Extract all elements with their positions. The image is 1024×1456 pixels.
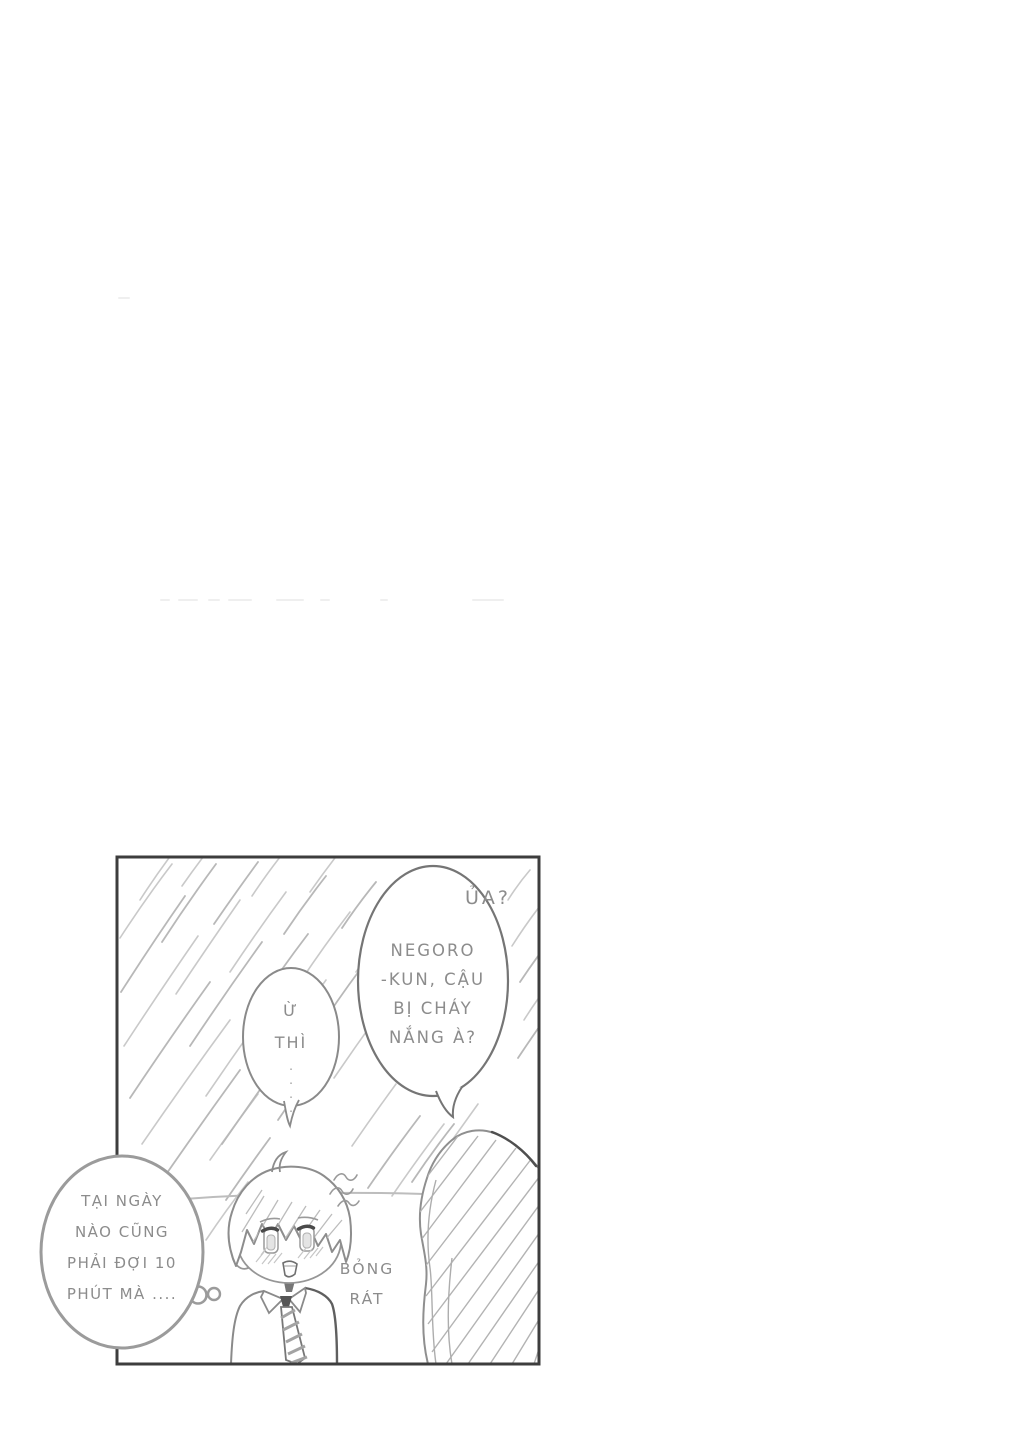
girl-speech-line: BỊ CHÁY xyxy=(358,994,508,1023)
thought-line: PHÚT MÀ .... xyxy=(44,1279,200,1310)
sfx-line: RÁT xyxy=(334,1284,400,1314)
girl-hair xyxy=(420,1130,540,1364)
girl-character xyxy=(420,1130,540,1364)
girl-speech-line: NẮNG À? xyxy=(358,1023,508,1052)
girl-speech-text: NEGORO -KUN, CẬU BỊ CHÁY NẮNG À? xyxy=(358,936,508,1052)
thought-line: NÀO CŨNG xyxy=(44,1217,200,1248)
thought-line: PHẢI ĐỢI 10 xyxy=(44,1248,200,1279)
girl-speech-line: -KUN, CẬU xyxy=(358,965,508,994)
girl-speech-line: NEGORO xyxy=(358,936,508,965)
boy-speech-line: THÌ xyxy=(259,1027,323,1059)
boy-speech-line: Ừ xyxy=(259,995,323,1027)
boy-mouth xyxy=(283,1261,297,1277)
sfx-text: BỎNG RÁT xyxy=(334,1254,400,1314)
sfx-line: BỎNG xyxy=(334,1254,400,1284)
manga-page: ỦA? NEGORO -KUN, CẬU BỊ CHÁY NẮNG À? Ừ T… xyxy=(0,0,1024,1456)
boy-thought-text: TẠI NGÀY NÀO CŨNG PHẢI ĐỢI 10 PHÚT MÀ ..… xyxy=(44,1186,200,1310)
thought-line: TẠI NGÀY xyxy=(44,1186,200,1217)
girl-exclaim-text: ỦA? xyxy=(447,884,529,913)
boy-speech-ellipsis: .... xyxy=(285,1059,297,1089)
thought-bubble-dot xyxy=(208,1288,220,1300)
boy-speech-text: Ừ THÌ .... xyxy=(259,995,323,1089)
